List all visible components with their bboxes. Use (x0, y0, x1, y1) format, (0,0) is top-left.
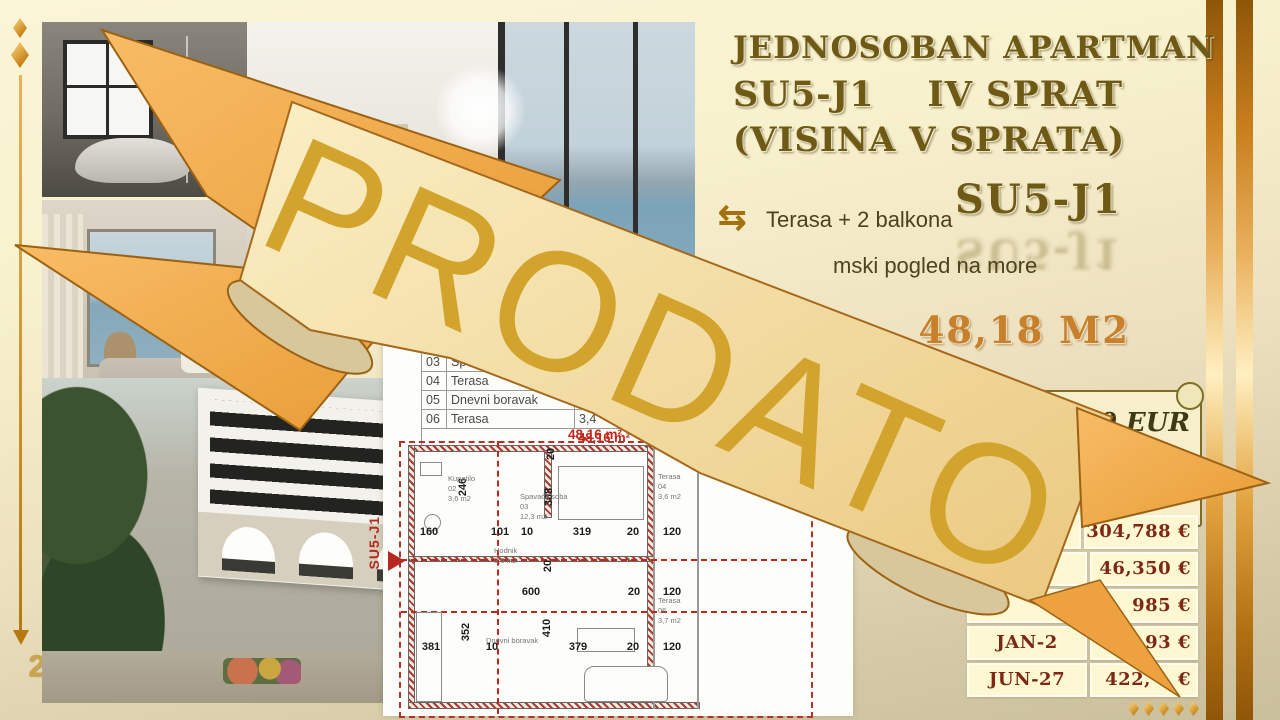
parchment-price: 00 EUR (1081, 408, 1190, 438)
kitchen-counter-symbol (416, 612, 442, 702)
dimension-label: 101 (491, 526, 509, 538)
room-row: 06Terasa3,4 (421, 410, 711, 429)
section-line (401, 611, 807, 613)
diamond-ornament-icon (1128, 701, 1139, 716)
dimension-label: 352 (460, 623, 472, 641)
section-line (497, 441, 499, 714)
right-border-bar (1236, 0, 1253, 720)
price-row: 46,350 € (967, 552, 1198, 586)
price-row: JAN-293 € (967, 626, 1198, 660)
terrace-line (697, 445, 699, 709)
room-cell: 04 (422, 372, 446, 390)
price-date-cell: JAN-2 (967, 626, 1087, 660)
room-label: Terasa043,6 m2 (658, 472, 681, 501)
title-line1: JEDNOSOBAN APARTMAN (733, 30, 1215, 66)
room-cell: Terasa (446, 372, 574, 390)
room-cell: 3,4 (574, 410, 710, 428)
room-label: Terasa063,7 m2 (658, 596, 681, 625)
dimension-label: 20 (627, 641, 639, 653)
room-cell (574, 391, 710, 409)
room-cell: 05 (422, 391, 446, 409)
chandelier (408, 139, 468, 199)
room-label: Dnevni boravak (486, 636, 538, 646)
price-row: 304,788 € (967, 515, 1198, 549)
price-value-cell: 46,350 € (1090, 552, 1198, 586)
dimension-label: 120 (663, 641, 681, 653)
diamond-ornament-icon (1188, 701, 1199, 716)
room-row: 03Spa (421, 352, 711, 372)
room-row: 04Terasa (421, 372, 711, 391)
wall-frames (337, 124, 409, 142)
price-date-cell (967, 515, 1081, 549)
wall (408, 445, 654, 452)
diamond-ornament-icon (1143, 701, 1154, 716)
room-label: Kupatilo023,6 m2 (448, 474, 475, 503)
dimension-label: 379 (569, 641, 587, 653)
room-cell: 06 (422, 410, 446, 428)
title-line2: SU5-J1 IV SPRAT (733, 74, 1123, 115)
price-date-cell (967, 552, 1087, 586)
slide: 26 03Spa04T (0, 0, 1280, 720)
price-date-cell: JUN-27 (967, 663, 1087, 697)
sink-symbol (420, 462, 442, 476)
room-row: 05Dnevni boravak (421, 391, 711, 410)
dimension-label: 381 (422, 641, 440, 653)
feature-sea-view: mski pogled na more (833, 253, 1037, 279)
window (63, 40, 153, 139)
room-cell (574, 353, 710, 371)
section-line (401, 559, 807, 561)
dimension-label: 319 (573, 526, 591, 538)
dimension-label: 20 (628, 586, 640, 598)
diamond-ornament-icon (1158, 701, 1169, 716)
right-arrow-icon (388, 551, 405, 571)
right-border-bar (1206, 0, 1223, 720)
room-label: Hodnik3,6 m2 (494, 546, 517, 566)
room-cell: 03 (422, 353, 446, 371)
floorplan-total-area: 48,16 m² (568, 427, 622, 442)
price-table: 304,788 €46,350 €985 €JAN-293 €JUN-27422… (967, 515, 1198, 700)
diamond-ornament-icon (13, 18, 27, 38)
dimension-label: 600 (522, 586, 540, 598)
unit-code: SU5-J1 (955, 176, 1122, 223)
room-cell (574, 372, 710, 390)
price-row: JUN-27422, € (967, 663, 1198, 697)
living-room-photo (247, 22, 695, 330)
price-date-cell (967, 589, 1087, 623)
price-value-cell: 304,788 € (1084, 515, 1198, 549)
dimension-label: 20 (545, 448, 557, 460)
title-line3: (VISINA V SPRATA) (733, 120, 1125, 160)
price-value-cell: 422, € (1090, 663, 1198, 697)
shelf (328, 145, 427, 148)
wall (408, 702, 700, 709)
flower-bed (223, 658, 301, 684)
room-cell: Dnevni boravak (446, 391, 574, 409)
dimension-label: 20 (542, 560, 554, 572)
diamond-ornament-icon (1173, 701, 1184, 716)
room-label: Spavaća soba0312,3 m2 (520, 492, 568, 521)
feature-terrace: Terasa + 2 balkona (766, 207, 953, 233)
dimension-label: 20 (627, 526, 639, 538)
swap-arrows-icon (718, 198, 747, 238)
sofa-symbol (584, 666, 668, 702)
dimension-label: 120 (663, 526, 681, 538)
floorplan-unit-label: SU5-J1 (366, 516, 382, 569)
pillows (181, 344, 234, 373)
down-arrow-icon (13, 630, 29, 645)
dimension-label: 160 (420, 526, 438, 538)
parchment-roll (1176, 382, 1204, 410)
bathtub (75, 138, 190, 184)
room-cell: Terasa (446, 410, 574, 428)
wall (408, 445, 415, 709)
bed-symbol (558, 466, 644, 520)
room-table: 03Spa04Terasa05Dnevni boravak06Terasa3,4… (421, 352, 711, 448)
left-divider-line (19, 75, 22, 632)
dimension-label: 410 (541, 619, 553, 637)
price-parchment: 00 EUR (1012, 390, 1202, 527)
price-value-cell: 985 € (1090, 589, 1198, 623)
area-label: 48,18 M2 (919, 308, 1130, 352)
bathroom-photo (42, 22, 247, 197)
dimension-label: 10 (521, 526, 533, 538)
price-row: 985 € (967, 589, 1198, 623)
diamond-ornament-icon (11, 42, 29, 68)
price-value-cell: 93 € (1090, 626, 1198, 660)
room-cell: Spa (446, 353, 574, 371)
